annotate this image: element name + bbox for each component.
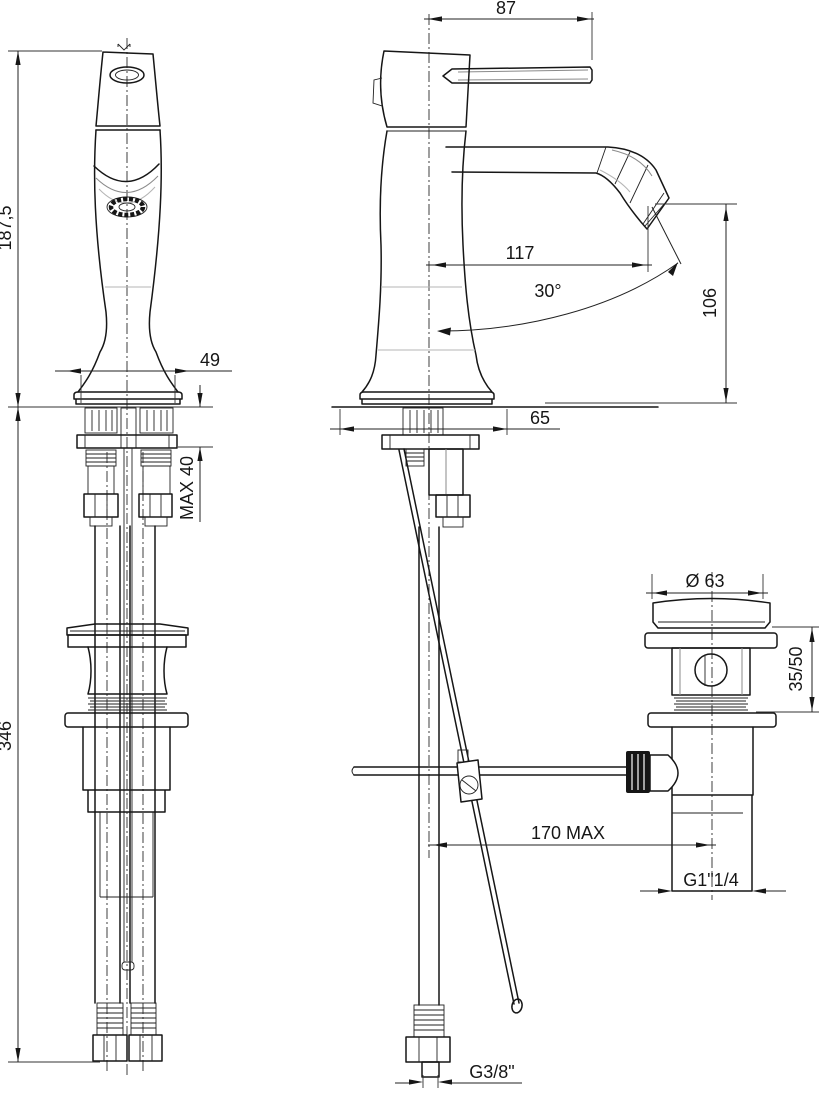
- dim-below-deck-length: 346: [0, 721, 15, 751]
- dim-drain-clamp-range: 35/50: [786, 646, 806, 691]
- dim-handle-base-width: 49: [200, 350, 220, 370]
- dimension-labels: 87 187,5 346 49 65 117 30° 106 MAX 40 Ø …: [0, 0, 806, 1082]
- dim-drain-flange-diameter: Ø 63: [685, 571, 724, 591]
- front-view-drain: [65, 624, 188, 897]
- dim-spout-height: 106: [700, 288, 720, 318]
- drain-side-view: [626, 599, 777, 892]
- dim-rod-horizontal-max: 170 MAX: [531, 823, 605, 843]
- dim-lever-width: 87: [496, 0, 516, 18]
- dim-max-counter-thickness: MAX 40: [177, 456, 197, 520]
- centerlines: [107, 14, 712, 1075]
- front-view-faucet: [74, 44, 182, 404]
- dim-drain-outlet-thread: G1"1/4: [683, 870, 738, 890]
- side-view-underdeck: [352, 408, 627, 1077]
- dim-height-above-deck: 187,5: [0, 205, 15, 250]
- side-view-faucet: [332, 51, 669, 407]
- dim-supply-hose-thread: G3/8": [469, 1062, 514, 1082]
- front-view-underdeck: [77, 408, 177, 1061]
- dim-spout-reach: 117: [506, 243, 535, 263]
- technical-drawing-sheet: 87 187,5 346 49 65 117 30° 106 MAX 40 Ø …: [0, 0, 820, 1099]
- dim-spout-angle: 30°: [534, 281, 561, 301]
- faucet-dimension-drawing: 87 187,5 346 49 65 117 30° 106 MAX 40 Ø …: [0, 0, 820, 1099]
- dim-base-depth: 65: [530, 408, 550, 428]
